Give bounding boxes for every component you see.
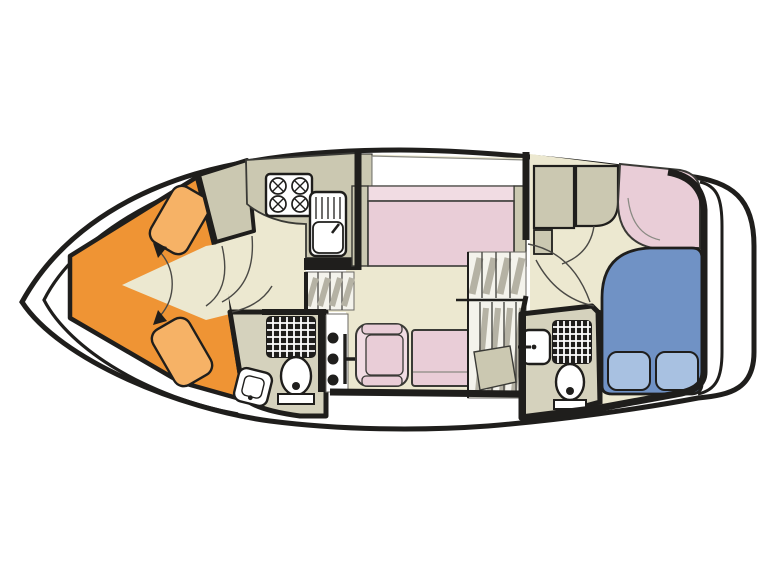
burner-icon: [292, 178, 308, 194]
wardrobe-right: [576, 166, 618, 226]
saloon-bottom-wall: [330, 392, 524, 394]
toilet: [554, 364, 586, 409]
burner-icon: [270, 196, 286, 212]
floor-plan-canvas: [0, 0, 768, 576]
shower: [266, 316, 316, 358]
galley-step-wall: [304, 258, 358, 270]
aft-bathroom: [518, 306, 600, 418]
shower: [552, 320, 592, 364]
stair-landing: [474, 346, 516, 390]
sideboard-shelf: [372, 156, 526, 186]
knob-icon: [328, 375, 339, 386]
sofa-backrest: [368, 186, 514, 201]
wardrobe-left: [534, 166, 574, 228]
bathroom-aft-wall: [318, 312, 326, 392]
washbasin: [232, 366, 273, 407]
table-seat: [412, 330, 476, 386]
boat-floor-plan: [0, 0, 768, 576]
toilet: [278, 357, 314, 404]
armchair: [356, 324, 408, 386]
burner-icon: [270, 178, 286, 194]
pillow: [656, 352, 698, 390]
knob-icon: [328, 333, 339, 344]
galley-steps: [306, 272, 354, 310]
forward-bathroom: [230, 312, 326, 416]
aft-bathroom-right-wall: [598, 310, 600, 404]
burner-icon: [292, 196, 308, 212]
pillow: [608, 352, 650, 390]
knob-icon: [328, 354, 339, 365]
